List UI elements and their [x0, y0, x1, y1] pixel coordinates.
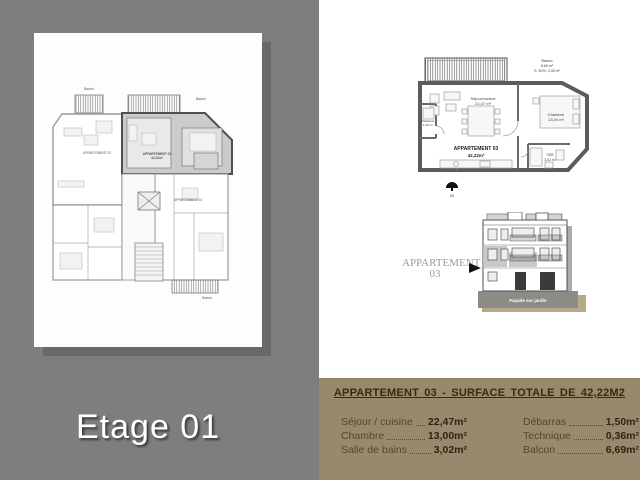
detail-sdb-label: SDB [547, 153, 555, 157]
apartment02-label: APPARTEMENT 02 [83, 151, 111, 155]
dotted-leader [574, 439, 603, 440]
row-value: 0,36m² [606, 430, 639, 442]
section-marker-label: 03 [450, 194, 454, 198]
table-row: Séjour / cuisine 22,47m² [341, 414, 467, 428]
detail-balcony-area: 6,69 m² [541, 64, 554, 68]
callout-line2: 03 [402, 269, 468, 280]
detail-apartment-label: APPARTEMENT 03 [454, 146, 499, 152]
detail-balcony-note: S. 50%: 3,35 m² [534, 69, 561, 73]
balcony-top-right-label: Balcon [196, 97, 206, 101]
main-floorplan: Balcon Balcon APPARTEMENT 02 APPARTEMENT… [34, 33, 262, 347]
surface-table-right-column: Débarras 1,50m² Technique 0,36m² Balcon … [523, 414, 639, 456]
apartment03-area-label: 42,22m² [151, 156, 163, 160]
dotted-leader [410, 453, 431, 454]
roof-box-right [536, 213, 548, 220]
balcony-railing-f1-center [510, 255, 536, 261]
row-label: Technique [523, 430, 571, 442]
ground-door-left [515, 272, 526, 290]
balcony-railing-f2-center [510, 235, 536, 241]
detail-balcony [425, 58, 507, 83]
apartment04-label: APPARTEMENT 04 [174, 198, 202, 202]
detail-debarras-area: 1,50 m² [423, 123, 434, 127]
row-label: Débarras [523, 416, 566, 428]
surface-table-panel: APPARTEMENT 03 - SURFACE TOTALE DE 42,22… [319, 378, 640, 480]
dotted-leader [416, 425, 425, 426]
detail-apartment-area: 42,22m² [468, 153, 485, 158]
balcony-top-center [128, 95, 180, 113]
table-row: Chambre 13,00m² [341, 428, 467, 442]
balcony-top-left-label: Balcon [84, 87, 94, 91]
apartment03-sdb-room [194, 153, 218, 169]
table-row: Salle de bains 3,02m² [341, 442, 467, 456]
detail-sdb-area: 3,02 m² [544, 158, 556, 162]
section-marker-icon [446, 182, 458, 191]
facade-label: Façade sur jardin [509, 298, 547, 303]
floor-title: Etage 01 [76, 408, 220, 447]
apartment03-detail-plan: Balcon 6,69 m² S. 50%: 3,35 m² Séjour/cu… [410, 46, 595, 201]
row-label: Balcon [523, 444, 555, 456]
elevation-container: Façade sur jardin [468, 212, 586, 316]
detail-chambre-area: 13,00 m² [548, 117, 564, 122]
dotted-leader [558, 453, 603, 454]
detail-sejour-area: 22,47 m² [475, 101, 491, 106]
ground-window [488, 272, 497, 281]
detail-balcony-name: Balcon [542, 59, 553, 63]
elevation-callout: APPARTEMENT 03 [402, 258, 468, 280]
surface-table-title: APPARTEMENT 03 - SURFACE TOTALE DE 42,22… [319, 387, 640, 399]
balcony-railing-f2-right [538, 235, 562, 241]
building-shadow [567, 226, 572, 294]
staircase [135, 243, 163, 281]
balcony-railing-f1-right [538, 255, 562, 261]
row-label: Chambre [341, 430, 384, 442]
detail-plan-container: Balcon 6,69 m² S. 50%: 3,35 m² Séjour/cu… [410, 46, 595, 201]
balcony-bottom-label: Balcon [202, 296, 212, 300]
row-label: Salle de bains [341, 444, 407, 456]
balcony-bottom [172, 280, 218, 293]
roof-box-left [508, 212, 522, 220]
dotted-leader [569, 425, 603, 426]
surface-table-left-column: Séjour / cuisine 22,47m² Chambre 13,00m²… [341, 414, 467, 456]
table-row: Débarras 1,50m² [523, 414, 639, 428]
row-value: 3,02m² [434, 444, 467, 456]
table-row: Technique 0,36m² [523, 428, 639, 442]
row-value: 6,69m² [606, 444, 639, 456]
row-label: Séjour / cuisine [341, 416, 413, 428]
table-row: Balcon 6,69m² [523, 442, 639, 456]
row-value: 1,50m² [606, 416, 639, 428]
row-value: 22,47m² [428, 416, 467, 428]
main-plan-sheet: Balcon Balcon APPARTEMENT 02 APPARTEMENT… [34, 33, 262, 347]
ground-door-right [540, 272, 555, 290]
dotted-leader [387, 439, 425, 440]
row-value: 13,00m² [428, 430, 467, 442]
elevation-drawing: Façade sur jardin [468, 212, 586, 316]
balcony-top-left [75, 95, 103, 113]
